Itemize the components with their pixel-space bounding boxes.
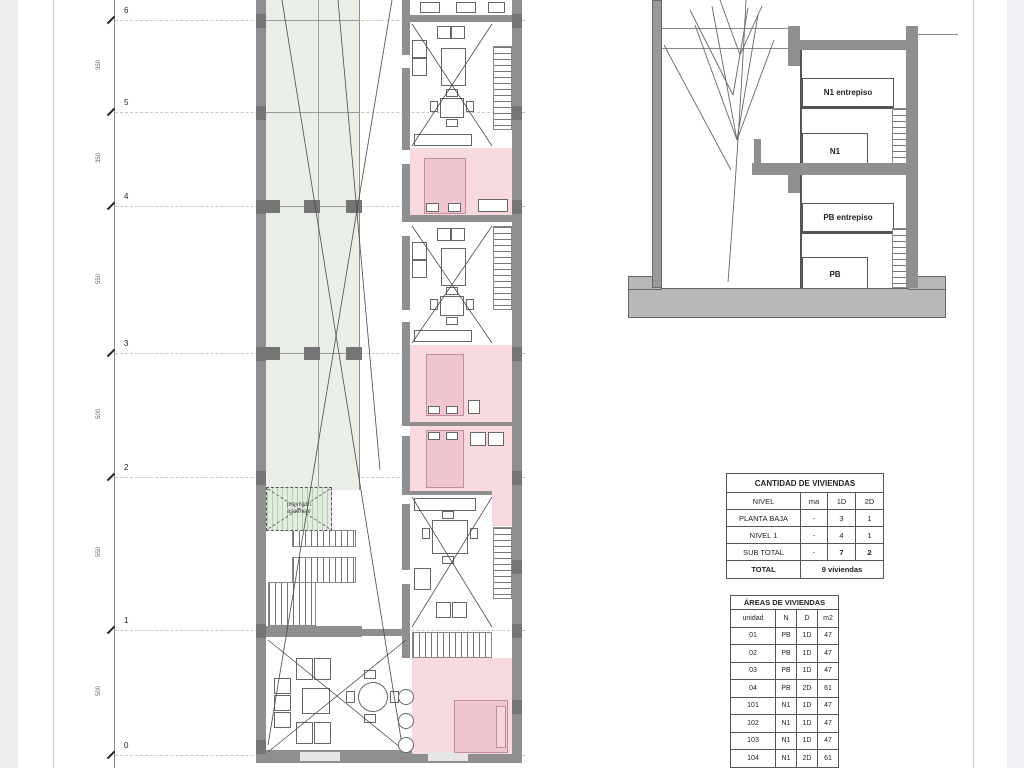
table-cell: - <box>801 544 828 561</box>
sofa <box>412 40 427 58</box>
dining-table <box>440 98 464 118</box>
sofa <box>274 678 291 694</box>
courtyard-cross-line <box>266 20 360 21</box>
furniture <box>420 2 440 13</box>
table-cell: NIVEL <box>727 493 801 510</box>
sofa <box>436 602 451 618</box>
table-cell: 47 <box>818 697 839 715</box>
core-stair-flight <box>268 582 316 626</box>
table-cell: 2D <box>797 750 818 768</box>
corridor-wall <box>402 164 410 222</box>
dimension-line <box>114 0 115 768</box>
section-line <box>662 28 788 29</box>
counter <box>414 134 472 146</box>
chair <box>364 670 376 679</box>
stairs-unit4 <box>493 527 512 599</box>
table-cell: unidad <box>731 610 776 628</box>
courtyard-pier <box>346 200 362 213</box>
column-circle <box>398 737 414 753</box>
sheet-border-line-left <box>53 0 54 768</box>
courtyard-cross-line <box>266 112 360 113</box>
courtyard-inner-line <box>318 0 319 490</box>
grid-label-6: 6 <box>124 6 128 15</box>
courtyard-pier <box>266 347 280 360</box>
grid-label-3: 3 <box>124 339 128 348</box>
table-cell: 3 <box>828 510 856 527</box>
table-cell: PB <box>776 680 797 698</box>
pillow <box>496 706 506 748</box>
table-row: 103N11D47 <box>731 732 839 750</box>
table-cell: - <box>801 527 828 544</box>
section-post <box>788 175 800 193</box>
wall-pier <box>512 700 522 714</box>
pillow <box>446 406 458 414</box>
chair <box>446 119 458 127</box>
corridor-wall <box>402 236 410 310</box>
window-gap <box>300 752 340 761</box>
wall-pier <box>512 471 522 485</box>
table-cell: N1 <box>776 715 797 733</box>
table-cell: 104 <box>731 750 776 768</box>
table-row: 02PB1D47 <box>731 645 839 663</box>
unit-wall <box>406 15 512 22</box>
table <box>302 688 330 714</box>
dim-label: 550 <box>96 269 102 289</box>
table-cell: 04 <box>731 680 776 698</box>
grid-label-2: 2 <box>124 463 128 472</box>
wall-pier <box>512 560 522 574</box>
sheet-margin-right <box>1007 0 1024 768</box>
furniture <box>488 2 505 13</box>
armchair <box>314 722 331 744</box>
dim-label: 550 <box>96 542 102 562</box>
table-cell: 03 <box>731 662 776 680</box>
wall-pier <box>256 14 266 28</box>
wall-pier <box>512 106 522 120</box>
stairs-pb <box>412 632 492 658</box>
chair <box>442 556 454 564</box>
section-post <box>754 139 761 163</box>
core-stair-flight <box>292 530 356 547</box>
pillow <box>428 406 440 414</box>
section-right-wall <box>906 26 918 288</box>
table <box>441 248 466 286</box>
grid-label-1: 1 <box>124 616 128 625</box>
corridor-wall <box>402 0 410 55</box>
table-row: SUB TOTAL-72 <box>727 544 884 561</box>
section-roof-slab <box>788 40 918 50</box>
round-table <box>358 682 388 712</box>
sofa <box>412 242 427 260</box>
table-cell: N1 <box>776 697 797 715</box>
table-header-row: NIVELma1D2D <box>727 493 884 510</box>
armchair <box>414 568 431 590</box>
table-row: 01PB1D47 <box>731 627 839 645</box>
chair <box>446 317 458 325</box>
table-cell: 1D <box>797 662 818 680</box>
table <box>451 228 465 241</box>
corridor-wall <box>402 504 410 570</box>
table <box>441 48 466 86</box>
counter <box>414 498 476 511</box>
cantidad-viviendas-table: CANTIDAD DE VIVIENDAS NIVELma1D2D PLANTA… <box>726 473 884 579</box>
drawing-sheet: 6 5 4 3 2 1 0 350 350 550 500 550 500 <box>0 0 1024 768</box>
dim-label: 350 <box>96 55 102 75</box>
sofa <box>412 260 427 278</box>
courtyard-pier <box>266 200 280 213</box>
table-cell: 101 <box>731 697 776 715</box>
sofa <box>412 58 427 76</box>
wall-pier <box>512 14 522 28</box>
sheet-margin-left <box>0 0 18 768</box>
window-gap <box>428 752 468 761</box>
sofa <box>452 602 467 618</box>
table-cell: 02 <box>731 645 776 663</box>
section-label-n1-entrepiso: N1 entrepiso <box>802 88 894 97</box>
chair <box>446 287 458 295</box>
grid-label-4: 4 <box>124 192 128 201</box>
courtyard-void <box>266 0 360 490</box>
table-cell: 103 <box>731 732 776 750</box>
column-circle <box>398 713 414 729</box>
chair <box>364 714 376 723</box>
total-label: TOTAL <box>727 561 801 579</box>
table <box>437 228 451 241</box>
table-cell: 1D <box>797 715 818 733</box>
section-left-wall <box>652 0 662 288</box>
wall-pier <box>256 471 266 485</box>
column-circle <box>398 689 414 705</box>
dim-label: 350 <box>96 148 102 168</box>
elevator-shaft: previsión ascensor <box>266 487 332 531</box>
chair <box>346 691 355 703</box>
table-cell: 2D <box>797 680 818 698</box>
pillow <box>446 432 458 440</box>
table-cell: 61 <box>818 750 839 768</box>
table-cell: 7 <box>828 544 856 561</box>
chair <box>446 89 458 97</box>
table-cell: 47 <box>818 662 839 680</box>
living-top-wall <box>362 629 402 636</box>
dining-table <box>440 296 464 316</box>
table-cell: 1D <box>797 732 818 750</box>
areas-viviendas-table: ÁREAS DE VIVIENDAS unidadNDm2 01PB1D4702… <box>730 595 839 768</box>
table-cell: N <box>776 610 797 628</box>
wall-pier <box>256 106 266 120</box>
wall-pier <box>512 624 522 638</box>
table-title: ÁREAS DE VIVIENDAS <box>731 596 839 610</box>
living-top-wall <box>266 626 362 637</box>
elevator-label-line1: previsión <box>287 502 311 509</box>
table-row: 03PB1D47 <box>731 662 839 680</box>
corridor-wall <box>402 322 410 424</box>
dining-table <box>432 520 468 554</box>
wall-pier <box>256 624 266 638</box>
chair <box>430 299 438 310</box>
table-cell: N1 <box>776 732 797 750</box>
wall-pier <box>512 200 522 214</box>
table-cell: 2D <box>856 493 884 510</box>
dim-label: 500 <box>96 681 102 701</box>
sofa <box>274 695 291 711</box>
wall-pier <box>256 347 266 361</box>
sofa <box>274 712 291 728</box>
corridor-wall <box>402 68 410 150</box>
section-ext-line <box>918 34 958 35</box>
wall-pier <box>512 347 522 361</box>
table-cell: 1 <box>856 510 884 527</box>
table <box>437 26 451 39</box>
total-value: 9 viviendas <box>801 561 884 579</box>
table-cell: 1 <box>856 527 884 544</box>
table-row: 04PB2D61 <box>731 680 839 698</box>
courtyard-pier <box>304 347 320 360</box>
stairs-unit1 <box>493 46 512 130</box>
section-line <box>662 48 788 49</box>
nightstand <box>468 400 480 414</box>
grid-label-5: 5 <box>124 98 128 107</box>
courtyard-pier <box>304 200 320 213</box>
sheet-border-line-right <box>973 0 974 768</box>
core-stair-flight <box>292 557 356 583</box>
table-cell: PB <box>776 645 797 663</box>
chair <box>430 101 438 112</box>
armchair <box>314 658 331 680</box>
wall-pier <box>256 740 266 754</box>
section-stairs-upper <box>892 108 907 164</box>
table-cell: PB <box>776 627 797 645</box>
table-cell: ma <box>801 493 828 510</box>
table-cell: 47 <box>818 627 839 645</box>
table-header-row: unidadNDm2 <box>731 610 839 628</box>
section-ground <box>628 288 946 318</box>
wall-pier <box>256 200 266 214</box>
seat <box>488 432 504 446</box>
section-label-n1: N1 <box>802 147 868 156</box>
pillow <box>426 203 439 212</box>
chair <box>470 528 478 539</box>
counter <box>414 330 472 342</box>
table-cell: 4 <box>828 527 856 544</box>
section-stairs-lower <box>892 228 907 288</box>
table-cell: D <box>797 610 818 628</box>
corridor-wall <box>402 436 410 492</box>
table-total-row: TOTAL 9 viviendas <box>727 561 884 579</box>
dim-label: 500 <box>96 404 102 424</box>
chair <box>422 528 430 539</box>
chair <box>466 101 474 112</box>
table-cell: 61 <box>818 680 839 698</box>
chair <box>466 299 474 310</box>
table-cell: 2 <box>856 544 884 561</box>
grid-label-0: 0 <box>124 741 128 750</box>
table-cell: PB <box>776 662 797 680</box>
table-cell: N1 <box>776 750 797 768</box>
courtyard-pier <box>346 347 362 360</box>
table-cell: m2 <box>818 610 839 628</box>
pillow <box>428 432 440 440</box>
armchair <box>296 658 313 680</box>
table-cell: 47 <box>818 715 839 733</box>
table-cell: 1D <box>797 645 818 663</box>
section-label-pb: PB <box>802 270 868 279</box>
table-cell: SUB TOTAL <box>727 544 801 561</box>
seat <box>470 432 486 446</box>
chair <box>442 511 454 519</box>
table-cell: 47 <box>818 645 839 663</box>
section-label-pb-entrepiso: PB entrepiso <box>802 213 894 222</box>
table <box>451 26 465 39</box>
table-cell: 01 <box>731 627 776 645</box>
table-cell: PLANTA BAJA <box>727 510 801 527</box>
table-cell: 47 <box>818 732 839 750</box>
armchair <box>296 722 313 744</box>
table-cell: NIVEL 1 <box>727 527 801 544</box>
table-cell: 102 <box>731 715 776 733</box>
elevator-label-line2: ascensor <box>287 509 311 516</box>
table-title: CANTIDAD DE VIVIENDAS <box>727 474 884 493</box>
table-cell: 1D <box>797 697 818 715</box>
corridor-wall <box>402 584 410 658</box>
pillow <box>448 203 461 212</box>
stairs-unit2 <box>493 226 512 310</box>
unit-wall <box>406 215 512 222</box>
furniture <box>456 2 476 13</box>
table-row: 101N11D47 <box>731 697 839 715</box>
table-cell: 1D <box>797 627 818 645</box>
table-row: 104N12D61 <box>731 750 839 768</box>
dresser <box>478 199 508 212</box>
table-cell: - <box>801 510 828 527</box>
table-row: 102N11D47 <box>731 715 839 733</box>
table-row: PLANTA BAJA-31 <box>727 510 884 527</box>
section-mid-slab <box>752 163 918 175</box>
table-cell: 1D <box>828 493 856 510</box>
table-row: NIVEL 1-41 <box>727 527 884 544</box>
